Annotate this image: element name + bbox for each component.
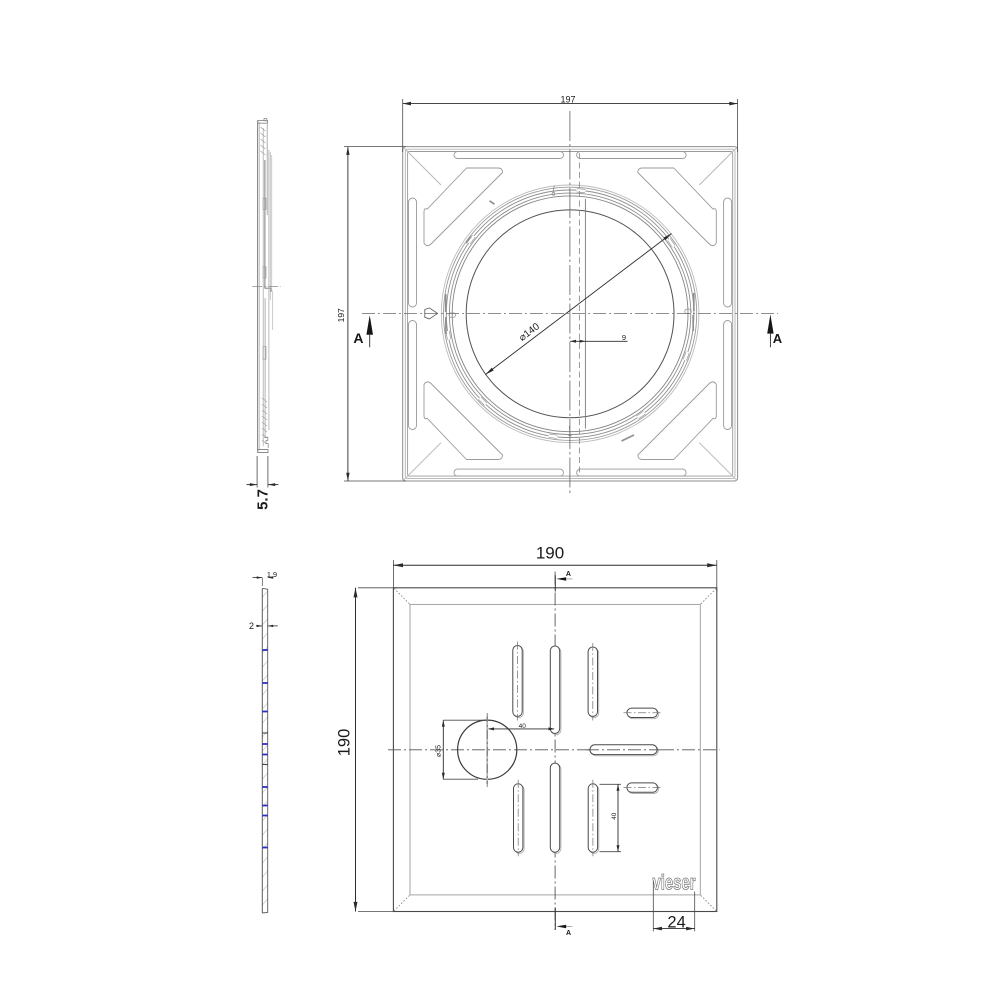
svg-text:A: A: [566, 930, 571, 937]
svg-text:9: 9: [622, 333, 626, 342]
svg-text:A: A: [353, 330, 363, 346]
svg-text:⌀35: ⌀35: [435, 745, 442, 757]
svg-text:A: A: [566, 571, 571, 578]
svg-text:1.9: 1.9: [267, 570, 277, 579]
svg-text:⌀140: ⌀140: [517, 321, 542, 344]
svg-text:197: 197: [336, 308, 346, 322]
svg-text:5.7: 5.7: [254, 489, 271, 510]
svg-text:24: 24: [667, 913, 685, 931]
svg-text:40: 40: [519, 723, 527, 730]
svg-text:2: 2: [249, 621, 254, 631]
svg-text:A: A: [773, 331, 783, 346]
svg-text:190: 190: [336, 729, 354, 757]
svg-text:vieser: vieser: [653, 871, 696, 895]
svg-text:40: 40: [611, 812, 618, 820]
svg-text:197: 197: [560, 95, 575, 105]
svg-text:190: 190: [536, 544, 564, 563]
